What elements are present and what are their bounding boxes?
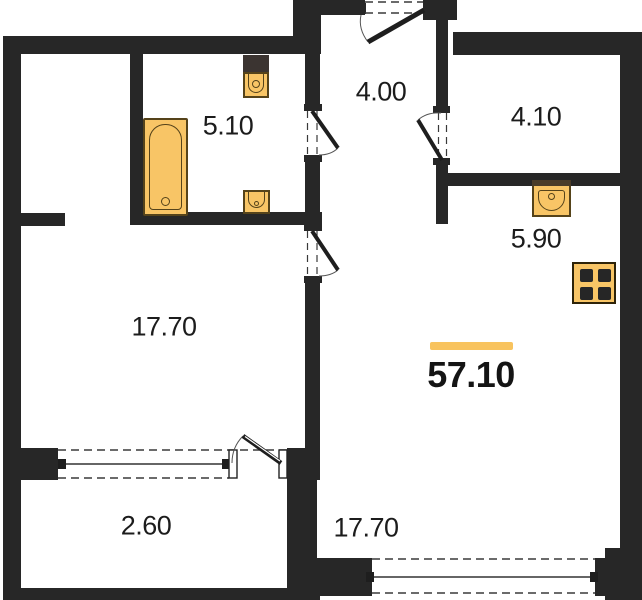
storage-door-jamb-top: [433, 106, 450, 113]
area-label-living-left: 17.70: [131, 312, 196, 343]
balcony-window: [58, 450, 287, 478]
wall-left-outer: [3, 36, 21, 600]
stove-burner: [580, 287, 593, 300]
wall-right-outer: [620, 32, 642, 600]
area-label-hallway: 4.00: [356, 77, 407, 108]
area-label-balcony: 2.60: [121, 511, 172, 542]
area-label-living-main: 17.70: [333, 513, 398, 544]
entry-door-jamb: [358, 3, 366, 14]
wall-top-left: [3, 36, 310, 54]
wall-hall-top: [300, 0, 365, 15]
wall-hall-bath-upper: [305, 0, 320, 104]
area-label-storage: 4.10: [511, 102, 562, 133]
entrance-door-swing: [360, 2, 424, 42]
area-label-bathroom: 5.10: [203, 111, 254, 142]
total-area-accent-bar: [430, 342, 513, 350]
main-window: [366, 559, 598, 593]
area-label-kitchen: 5.90: [511, 224, 562, 255]
plan-linework: [0, 0, 642, 600]
floor-plan: 5.10 4.00 4.10 5.90 17.70 17.70 2.60 57.…: [0, 0, 642, 600]
wall-balcony-right: [287, 448, 317, 593]
storage-door-swing: [418, 113, 447, 160]
bathroom-door-swing: [308, 111, 339, 155]
toilet-tank: [243, 55, 269, 73]
bathroom-sink: [243, 190, 270, 214]
room-door-jamb-bottom: [304, 276, 322, 283]
room-door-jamb-top: [304, 224, 322, 231]
toilet: [243, 72, 269, 98]
bath-door-jamb-top: [304, 104, 322, 111]
wall-bath-left: [130, 54, 143, 225]
bathtub: [143, 118, 188, 216]
kitchen-sink-drain: [548, 193, 555, 200]
bottom-window-jamb-right: [595, 558, 605, 596]
kitchen-sink: [532, 180, 571, 217]
wall-left-stub: [21, 213, 65, 226]
wall-storage-left-upper: [436, 16, 448, 106]
stove-burner: [598, 287, 611, 300]
balcony-door-swing: [229, 436, 287, 478]
bathtub-drain: [161, 197, 170, 206]
wall-balcony-window-left: [3, 448, 58, 480]
wall-balcony-bottom: [3, 588, 320, 600]
total-area-label: 57.10: [427, 354, 515, 396]
toilet-drain: [252, 80, 260, 88]
storage-door-jamb-bottom: [433, 158, 450, 165]
wall-bottom-right-corner: [605, 548, 642, 600]
stove-burner: [598, 269, 611, 282]
stove: [572, 262, 616, 304]
living-left-door-swing: [308, 231, 339, 276]
wall-top-right: [453, 32, 642, 55]
wall-bottom-left-segment: [317, 558, 372, 596]
bathroom-sink-drain: [254, 201, 259, 206]
kitchen-counter-edge: [532, 180, 571, 186]
bath-door-jamb-bottom: [304, 155, 322, 162]
stove-burner: [580, 269, 593, 282]
